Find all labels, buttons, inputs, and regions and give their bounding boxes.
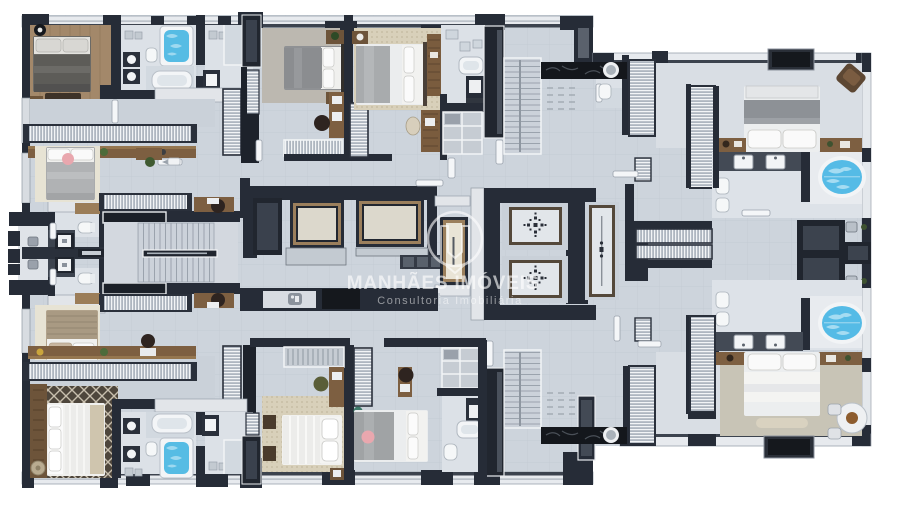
svg-text:Consultoria Imobiliária: Consultoria Imobiliária	[377, 295, 523, 307]
svg-text:MANHÃES IMÓVEIS: MANHÃES IMÓVEIS	[347, 272, 540, 294]
